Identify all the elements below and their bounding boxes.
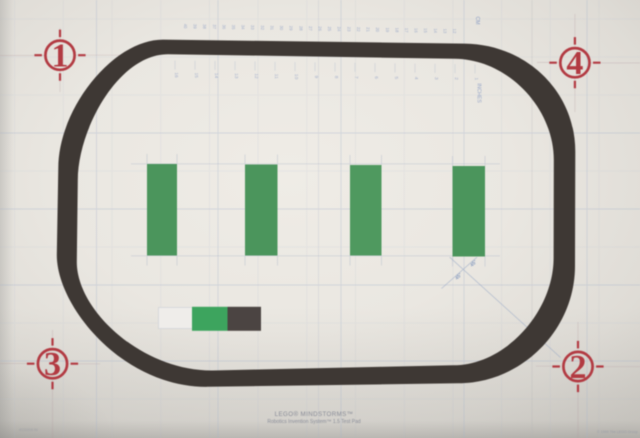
svg-text:3: 3 (44, 346, 61, 383)
svg-text:2: 2 (570, 349, 587, 386)
svg-text:16: 16 (173, 72, 179, 78)
svg-text:1: 1 (52, 38, 69, 75)
svg-text:26: 26 (318, 26, 323, 31)
svg-text:27: 27 (308, 26, 313, 31)
svg-text:INCHES: INCHES (476, 83, 482, 103)
svg-text:22: 22 (356, 27, 361, 32)
svg-text:19: 19 (385, 27, 390, 32)
svg-text:17: 17 (404, 28, 409, 33)
svg-text:18: 18 (394, 28, 399, 33)
svg-text:13: 13 (442, 29, 447, 34)
svg-text:12: 12 (452, 29, 457, 34)
svg-text:14: 14 (433, 28, 438, 33)
svg-text:10: 10 (293, 74, 299, 80)
svg-text:11: 11 (273, 74, 279, 79)
svg-text:25: 25 (327, 26, 332, 31)
svg-text:6: 6 (373, 76, 379, 79)
svg-text:36: 36 (221, 25, 226, 30)
svg-text:9: 9 (313, 75, 319, 78)
svg-text:3: 3 (433, 77, 439, 80)
svg-text:37: 37 (212, 24, 217, 29)
svg-text:4131916 IN: 4131916 IN (19, 428, 38, 432)
svg-text:15: 15 (423, 28, 428, 33)
svg-text:Robotics Invention System™ 1.5: Robotics Invention System™ 1.5 Test Pad (267, 419, 361, 425)
svg-text:38: 38 (202, 24, 207, 29)
svg-text:39: 39 (193, 24, 198, 29)
svg-text:29: 29 (289, 26, 294, 31)
svg-text:33: 33 (250, 25, 255, 30)
svg-text:© 1999 The LEGO Group: © 1999 The LEGO Group (597, 430, 638, 434)
svg-text:14: 14 (213, 73, 219, 79)
svg-text:34: 34 (241, 25, 246, 30)
svg-text:28: 28 (298, 26, 303, 31)
svg-text:31: 31 (270, 25, 275, 30)
svg-text:2: 2 (453, 77, 459, 80)
svg-text:16: 16 (414, 28, 419, 33)
svg-text:12: 12 (253, 73, 259, 79)
svg-text:20: 20 (375, 27, 380, 32)
svg-text:8: 8 (333, 76, 339, 79)
svg-text:4: 4 (413, 77, 419, 80)
svg-text:40: 40 (183, 24, 188, 29)
svg-text:21: 21 (366, 27, 371, 32)
svg-text:1: 1 (473, 78, 479, 81)
svg-text:23: 23 (346, 27, 351, 32)
svg-text:35: 35 (231, 25, 236, 30)
svg-text:13: 13 (233, 73, 239, 79)
svg-text:4: 4 (566, 45, 583, 82)
svg-text:7: 7 (353, 76, 359, 79)
svg-text:15: 15 (193, 73, 199, 79)
svg-text:5: 5 (393, 77, 399, 80)
svg-text:32: 32 (260, 25, 265, 30)
svg-text:CM: CM (474, 16, 480, 24)
svg-text:LEGO® MINDSTORMS™: LEGO® MINDSTORMS™ (275, 411, 354, 418)
svg-text:24: 24 (337, 27, 342, 32)
svg-text:30: 30 (279, 26, 284, 31)
